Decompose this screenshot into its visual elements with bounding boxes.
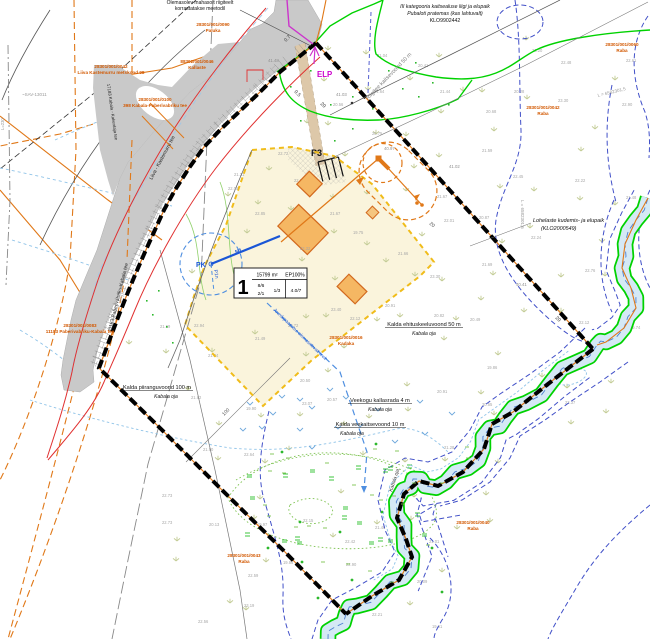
svg-text:21.49: 21.49: [255, 336, 266, 341]
svg-text:Liiva Kastemurru metskond 98: Liiva Kastemurru metskond 98: [78, 70, 145, 75]
svg-text:21.01: 21.01: [429, 539, 440, 544]
svg-text:EP100%: EP100%: [285, 273, 305, 279]
svg-text:22.15: 22.15: [303, 518, 314, 523]
svg-text:22.61: 22.61: [626, 58, 637, 63]
svg-text:KLO9902442: KLO9902442: [430, 18, 461, 24]
svg-text:28301/001/0042: 28301/001/0042: [526, 105, 560, 110]
svg-text:korrastatakse meetodil: korrastatakse meetodil: [175, 6, 225, 12]
svg-text:22.48: 22.48: [561, 60, 572, 65]
svg-text:41.48: 41.48: [268, 58, 279, 63]
svg-text:40.41: 40.41: [516, 282, 527, 287]
svg-text:20.49: 20.49: [470, 317, 481, 322]
svg-text:21.48: 21.48: [626, 195, 637, 200]
svg-text:28301/001/0090: 28301/001/0090: [196, 22, 230, 27]
svg-text:21.90: 21.90: [203, 447, 214, 452]
svg-text:22.45: 22.45: [513, 174, 524, 179]
svg-text:19.75: 19.75: [353, 230, 364, 235]
svg-text:21.44: 21.44: [440, 89, 451, 94]
svg-text:(KLO2000549): (KLO2000549): [541, 226, 577, 232]
svg-text:28301/001/0042: 28301/001/0042: [94, 64, 128, 69]
svg-text:III kategooria kaitsealuse lii: III kategooria kaitsealuse liigi ja elup…: [400, 4, 490, 10]
svg-text:22.12: 22.12: [579, 320, 590, 325]
svg-text:15799 m²: 15799 m²: [256, 273, 277, 279]
svg-text:Pubaloti pratemas (kas lahtuva: Pubaloti pratemas (kas lahtuvalt): [407, 11, 483, 17]
svg-text:L=230: L=230: [0, 118, 5, 130]
svg-text:22.72: 22.72: [278, 151, 289, 156]
svg-text:22.01: 22.01: [444, 218, 455, 223]
svg-text:8/6: 8/6: [258, 283, 265, 289]
svg-text:23.19: 23.19: [244, 603, 255, 608]
svg-text:22.90: 22.90: [346, 562, 357, 567]
svg-text:Raba: Raba: [238, 559, 250, 564]
svg-text:21.69: 21.69: [482, 262, 493, 267]
svg-text:4.0/7: 4.0/7: [291, 288, 302, 294]
svg-text:1: 1: [237, 277, 248, 299]
svg-text:11183 Paberivabriku-Kabala tee: 11183 Paberivabriku-Kabala tee: [46, 329, 115, 334]
svg-text:28301/001/0060: 28301/001/0060: [605, 42, 639, 47]
svg-text:19.86: 19.86: [487, 365, 498, 370]
svg-text:88302/001/0046: 88302/001/0046: [180, 59, 214, 64]
svg-text:23.07: 23.07: [302, 401, 313, 406]
svg-text:22.05: 22.05: [228, 186, 239, 191]
svg-text:22.22: 22.22: [575, 178, 586, 183]
svg-text:398 Kabala-Paberivabriku tee: 398 Kabala-Paberivabriku tee: [123, 103, 187, 108]
svg-text:Kabala oja: Kabala oja: [154, 394, 178, 400]
svg-text:Kalda ehituskeeluvoond 50 m: Kalda ehituskeeluvoond 50 m: [387, 322, 461, 328]
svg-text:22.85: 22.85: [255, 211, 266, 216]
svg-text:20.91: 20.91: [385, 303, 396, 308]
svg-text:Kallaste: Kallaste: [188, 65, 206, 70]
svg-text:28301/001/0043: 28301/001/0043: [227, 553, 261, 558]
svg-text:PK: PK: [196, 262, 206, 269]
svg-text:Raba: Raba: [616, 48, 628, 53]
svg-text:Kalda veekaitsevoond 10 m: Kalda veekaitsevoond 10 m: [336, 422, 405, 428]
svg-text:21.62: 21.62: [191, 395, 202, 400]
svg-text:22.32: 22.32: [300, 246, 311, 251]
svg-text:28301/001/0040: 28301/001/0040: [456, 520, 490, 525]
svg-text:ELP: ELP: [317, 70, 332, 79]
svg-text:20.75: 20.75: [372, 131, 383, 136]
svg-text:Raba: Raba: [467, 526, 479, 531]
svg-text:20.57: 20.57: [327, 397, 338, 402]
svg-text:~SAV-13011: ~SAV-13011: [22, 92, 47, 97]
svg-text:22.73: 22.73: [162, 493, 173, 498]
svg-text:21.66: 21.66: [398, 251, 409, 256]
svg-text:Raba: Raba: [537, 111, 549, 116]
svg-text:20.50: 20.50: [300, 378, 311, 383]
svg-text:Kalda piiranguvoond 100 m: Kalda piiranguvoond 100 m: [123, 385, 191, 391]
svg-text:22.73: 22.73: [162, 520, 173, 525]
svg-text:22.94: 22.94: [194, 323, 205, 328]
svg-text:21.28: 21.28: [444, 445, 455, 450]
svg-text:20.68: 20.68: [486, 109, 497, 114]
svg-text:22.56: 22.56: [198, 619, 209, 624]
svg-text:20.13: 20.13: [209, 522, 220, 527]
svg-text:23.40: 23.40: [331, 307, 342, 312]
svg-text:20.82: 20.82: [434, 313, 445, 318]
svg-text:22.42: 22.42: [345, 539, 356, 544]
svg-text:Kabala oja: Kabala oja: [340, 431, 364, 437]
svg-text:23.30: 23.30: [558, 98, 569, 103]
svg-text:20.41: 20.41: [418, 63, 429, 68]
svg-text:Lohelaste kudemis- ja elupaik: Lohelaste kudemis- ja elupaik: [533, 218, 604, 224]
svg-text:23.30: 23.30: [430, 274, 441, 279]
svg-text:20.56: 20.56: [333, 102, 344, 107]
svg-text:21.67: 21.67: [330, 211, 341, 216]
svg-text:21.69: 21.69: [160, 324, 171, 329]
svg-text:22.90: 22.90: [622, 102, 633, 107]
svg-text:1/3: 1/3: [274, 288, 281, 294]
svg-text:28301/001/0083: 28301/001/0083: [63, 323, 97, 328]
svg-text:22.12: 22.12: [350, 316, 361, 321]
svg-text:20.87: 20.87: [479, 215, 490, 220]
svg-text:19.90: 19.90: [246, 406, 257, 411]
svg-text:41.03: 41.03: [336, 92, 347, 97]
svg-text:Kadaka: Kadaka: [338, 341, 355, 346]
svg-text:28301/001/0016: 28301/001/0016: [329, 335, 363, 340]
svg-text:22.76: 22.76: [585, 268, 596, 273]
svg-text:L = 6582301,5: L = 6582301,5: [520, 200, 525, 229]
svg-text:22.64: 22.64: [244, 452, 255, 457]
svg-text:20.91: 20.91: [437, 389, 448, 394]
svg-text:Paluka: Paluka: [206, 28, 221, 33]
svg-text:Veekogu kallasrada 4 m: Veekogu kallasrada 4 m: [350, 398, 410, 404]
svg-text:41.02: 41.02: [449, 164, 460, 169]
svg-text:22.59: 22.59: [248, 573, 259, 578]
svg-text:21.59: 21.59: [482, 148, 493, 153]
svg-text:28301/001/0100: 28301/001/0100: [138, 97, 172, 102]
svg-text:2/1: 2/1: [258, 291, 265, 297]
svg-text:40.97: 40.97: [384, 146, 395, 151]
svg-text:21.67: 21.67: [437, 194, 448, 199]
svg-text:22.24: 22.24: [531, 235, 542, 240]
svg-text:Kabala oja: Kabala oja: [412, 331, 436, 337]
svg-text:22.21: 22.21: [372, 612, 383, 617]
svg-text:Kabala oja: Kabala oja: [368, 407, 392, 413]
